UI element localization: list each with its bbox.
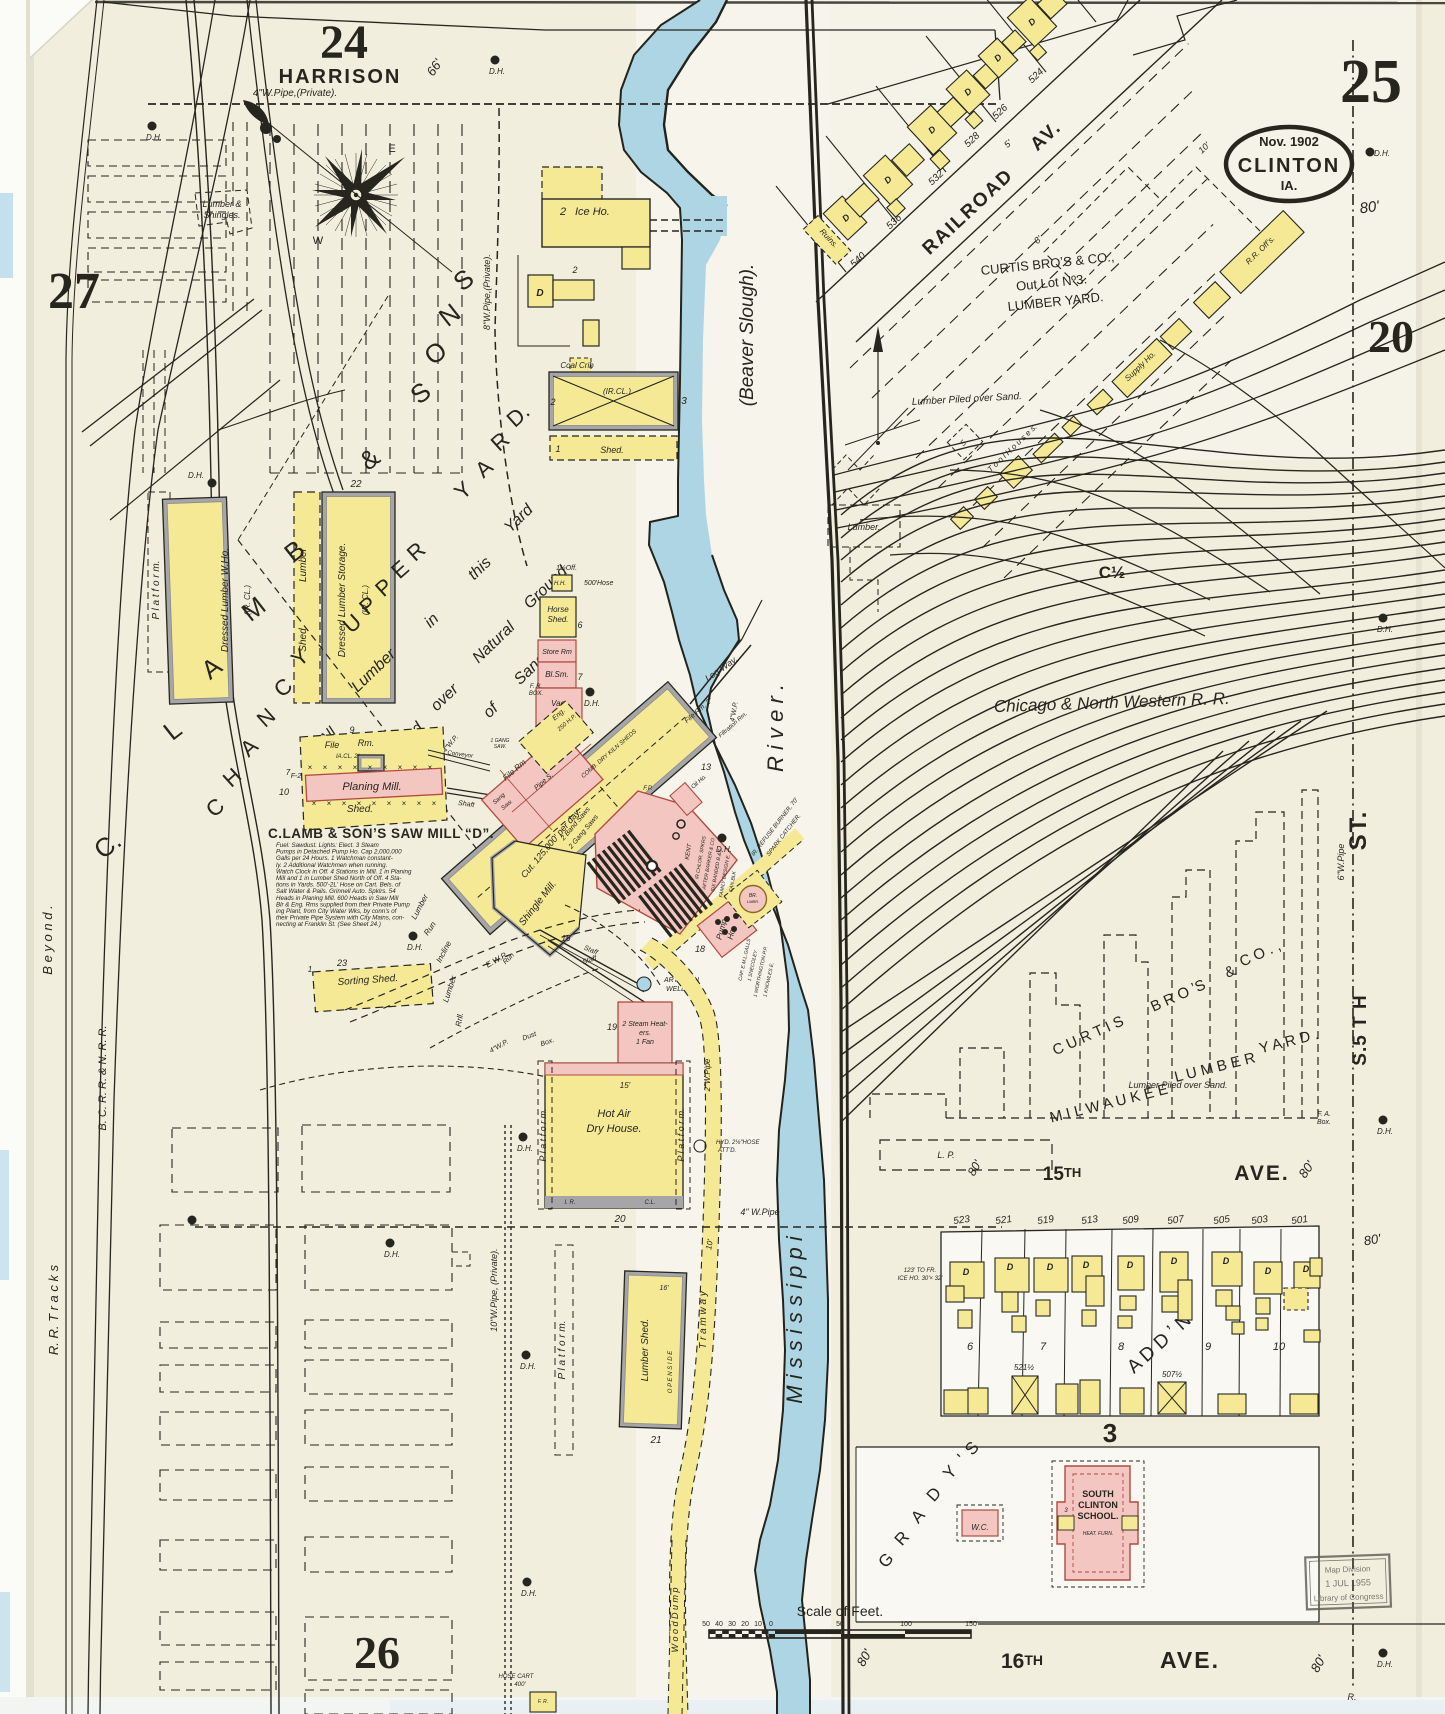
svg-text:File: File	[325, 740, 340, 750]
svg-text:Map Division: Map Division	[1325, 1564, 1371, 1575]
svg-text:D: D	[536, 288, 543, 299]
svg-text:×: ×	[372, 799, 377, 808]
svg-text:123' TO FR.: 123' TO FR.	[904, 1268, 936, 1274]
svg-text:P l a t f o r m.: P l a t f o r m.	[151, 560, 162, 619]
svg-text:13: 13	[701, 762, 711, 772]
svg-text:W.C.: W.C.	[971, 1523, 988, 1532]
svg-text:D: D	[1265, 1266, 1272, 1276]
svg-text:Box.: Box.	[1317, 1119, 1331, 1126]
svg-text:IA.CL. 2°: IA.CL. 2°	[336, 754, 361, 760]
svg-text:Dressed Lumber Storage.: Dressed Lumber Storage.	[337, 543, 348, 658]
svg-text:F. A.: F. A.	[1317, 1111, 1331, 1118]
svg-text:150: 150	[965, 1621, 977, 1628]
svg-text:×: ×	[428, 763, 433, 772]
svg-text:D: D	[1047, 1262, 1054, 1272]
svg-text:×: ×	[327, 799, 332, 808]
svg-text:ATTʼD.: ATTʼD.	[717, 1148, 736, 1154]
svg-text:Dressed Lumber W.Ho.: Dressed Lumber W.Ho.	[220, 548, 231, 652]
svg-text:F-2: F-2	[291, 773, 302, 780]
svg-text:F. R.: F. R.	[538, 1699, 548, 1705]
svg-text:3: 3	[1103, 1418, 1117, 1448]
svg-text:(IR.CL.): (IR.CL.)	[603, 387, 631, 396]
svg-text:SAW.: SAW.	[494, 744, 507, 750]
svg-text:2"W.Pipe: 2"W.Pipe	[703, 1058, 712, 1092]
svg-text:Lumber &: Lumber &	[202, 199, 241, 209]
svg-text:D.H.: D.H.	[521, 1589, 537, 1598]
svg-text:D: D	[1007, 1262, 1014, 1272]
svg-text:×: ×	[342, 799, 347, 808]
svg-text:22: 22	[349, 479, 362, 490]
svg-text:Bl.Sm.: Bl.Sm.	[545, 670, 569, 679]
svg-text:BOX.: BOX.	[529, 691, 543, 697]
svg-text:×: ×	[383, 763, 388, 772]
svg-text:W o o d D u m p: W o o d D u m p	[670, 1587, 680, 1652]
svg-text:D.H.: D.H.	[1374, 149, 1390, 158]
svg-text:D.H.: D.H.	[1377, 1127, 1393, 1136]
svg-text:Lumber Shed.: Lumber Shed.	[640, 1319, 651, 1382]
svg-text:×: ×	[387, 799, 392, 808]
svg-text:O P E N S I D E: O P E N S I D E	[668, 1350, 674, 1393]
svg-text:30: 30	[728, 1621, 736, 1628]
svg-text:D.H.: D.H.	[517, 1144, 533, 1153]
svg-text:E: E	[388, 143, 395, 155]
svg-text:IA.: IA.	[1281, 178, 1298, 193]
svg-text:R.: R.	[1348, 1692, 1357, 1702]
svg-text:D.H.: D.H.	[520, 1362, 536, 1371]
svg-text:D: D	[1083, 1260, 1090, 1270]
svg-text:16′: 16′	[659, 1285, 669, 1292]
svg-text:×: ×	[368, 763, 373, 772]
svg-text:27: 27	[48, 263, 100, 320]
svg-text:HEAT. FURN.: HEAT. FURN.	[1083, 1531, 1114, 1537]
svg-text:LMBR.: LMBR.	[747, 899, 759, 904]
svg-text:3: 3	[681, 396, 687, 407]
svg-text:1: 1	[555, 444, 560, 454]
svg-text:(Beaver Slough).: (Beaver Slough).	[737, 264, 758, 407]
svg-text:D.H.: D.H.	[384, 1250, 400, 1259]
svg-text:CLINTON: CLINTON	[1238, 155, 1341, 177]
svg-text:10: 10	[1273, 1341, 1286, 1353]
svg-text:6"W.Pipe: 6"W.Pipe	[1336, 844, 1346, 881]
svg-text:×: ×	[357, 799, 362, 808]
svg-text:SOUTH: SOUTH	[1082, 1489, 1114, 1499]
svg-text:521: 521	[995, 1214, 1013, 1227]
svg-text:×: ×	[398, 763, 403, 772]
svg-text:ers.: ers.	[639, 1030, 651, 1037]
svg-text:10: 10	[279, 787, 289, 797]
svg-text:C.LAMB & SONʼS SAW MILL “D”.: C.LAMB & SONʼS SAW MILL “D”.	[268, 826, 494, 841]
svg-text:Hot Air: Hot Air	[597, 1108, 632, 1120]
svg-text:40: 40	[715, 1621, 723, 1628]
svg-text:1 Fan: 1 Fan	[636, 1039, 654, 1046]
svg-text:10': 10'	[704, 1238, 715, 1250]
svg-text:W: W	[313, 235, 324, 247]
svg-text:×: ×	[353, 763, 358, 772]
svg-text:HARRISON: HARRISON	[279, 66, 402, 88]
svg-text:D: D	[963, 1267, 970, 1277]
svg-text:×: ×	[413, 763, 418, 772]
svg-text:1: 1	[308, 965, 312, 974]
svg-text:SCHOOL.: SCHOOL.	[1077, 1511, 1118, 1521]
svg-text:4" W.Pipe: 4" W.Pipe	[740, 1207, 779, 1217]
svg-text:I. R.: I. R.	[564, 1200, 575, 1206]
svg-text:19: 19	[607, 1022, 617, 1032]
svg-text:×: ×	[312, 799, 317, 808]
svg-text:D.H.: D.H.	[407, 943, 423, 952]
svg-text:necting at Franklin St. (See S: necting at Franklin St. (See Sheet 24.)	[276, 921, 381, 928]
svg-text:400′: 400′	[514, 1682, 526, 1688]
svg-text:×: ×	[402, 799, 407, 808]
svg-text:Horse: Horse	[547, 605, 569, 614]
svg-text:D: D	[1127, 1260, 1134, 1270]
svg-text:10: 10	[754, 1621, 762, 1628]
svg-text:ST.: ST.	[1345, 810, 1372, 851]
svg-text:7: 7	[1040, 1341, 1047, 1353]
svg-text:100: 100	[900, 1621, 912, 1628]
svg-text:R i v e r .: R i v e r .	[763, 684, 788, 772]
svg-text:CLINTON: CLINTON	[1078, 1500, 1118, 1510]
svg-text:D.H.: D.H.	[1377, 1660, 1393, 1669]
svg-text:B e y o n d .: B e y o n d .	[40, 905, 55, 974]
svg-text:D: D	[1303, 1264, 1310, 1274]
svg-text:23: 23	[336, 958, 347, 968]
svg-text:50: 50	[836, 1621, 844, 1628]
svg-text:×: ×	[432, 799, 437, 808]
svg-text:L. P.: L. P.	[937, 1150, 954, 1160]
svg-text:6: 6	[577, 620, 582, 630]
svg-text:D.H.: D.H.	[188, 471, 204, 480]
svg-text:Lumber.: Lumber.	[848, 522, 881, 532]
svg-text:M i s s i s s i p p i: M i s s i s s i p p i	[782, 1235, 807, 1404]
svg-text:2: 2	[571, 265, 577, 275]
svg-text:50: 50	[702, 1621, 710, 1628]
svg-text:Shed.: Shed.	[548, 615, 569, 624]
svg-text:1 JUL 1955: 1 JUL 1955	[1325, 1577, 1371, 1589]
svg-text:21: 21	[649, 1435, 661, 1446]
svg-text:Lumber Piled over Sand.: Lumber Piled over Sand.	[1128, 1080, 1227, 1090]
svg-text:507½: 507½	[1162, 1370, 1182, 1379]
svg-text:80': 80'	[1363, 1231, 1383, 1249]
svg-text:HYD. 2⅛″HOSE: HYD. 2⅛″HOSE	[716, 1140, 760, 1146]
svg-text:Nov. 1902: Nov. 1902	[1259, 134, 1319, 149]
svg-text:4"W.Pipe,(Private).: 4"W.Pipe,(Private).	[253, 88, 337, 99]
svg-text:D.H.: D.H.	[1377, 625, 1393, 634]
svg-text:D.H.: D.H.	[584, 699, 600, 708]
svg-text:26: 26	[354, 1627, 400, 1678]
svg-text:F. R.: F. R.	[530, 684, 542, 690]
svg-text:80': 80'	[1359, 198, 1382, 218]
svg-text:Coal Crib: Coal Crib	[560, 361, 594, 370]
svg-text:6: 6	[967, 1341, 974, 1353]
svg-text:T r a m w a y: T r a m w a y	[698, 1290, 709, 1349]
svg-text:HOSE CART: HOSE CART	[499, 1674, 535, 1680]
svg-text:0: 0	[769, 1621, 773, 1628]
svg-text:15′: 15′	[620, 1081, 631, 1090]
svg-text:AVE.: AVE.	[1160, 1647, 1220, 1673]
svg-text:2 Steam Heat-: 2 Steam Heat-	[621, 1021, 668, 1028]
svg-text:1½Off.: 1½Off.	[556, 564, 577, 572]
svg-text:ICE HO. 30'× 32': ICE HO. 30'× 32'	[898, 1276, 944, 1282]
svg-text:C.L.: C.L.	[644, 1200, 655, 1206]
svg-text:9: 9	[1205, 1341, 1211, 1353]
svg-text:B. C. R. R. & N. R. R.: B. C. R. R. & N. R. R.	[97, 1025, 109, 1130]
svg-text:Shingles.: Shingles.	[203, 210, 240, 220]
svg-text:H.H.: H.H.	[554, 581, 566, 587]
svg-text:P l a t f o r m.: P l a t f o r m.	[557, 1320, 568, 1379]
svg-text:C½: C½	[1099, 563, 1125, 582]
svg-text:Planing Mill.: Planing Mill.	[342, 781, 401, 793]
svg-text:501: 501	[1291, 1214, 1309, 1227]
svg-text:D.H.: D.H.	[716, 845, 732, 854]
svg-text:Store Rm: Store Rm	[542, 649, 572, 656]
svg-text:D.H.: D.H.	[489, 67, 505, 76]
svg-text:P l a t f o r m.: P l a t f o r m.	[538, 1108, 548, 1161]
svg-text:20: 20	[613, 1214, 626, 1225]
svg-text:25: 25	[1340, 48, 1402, 116]
svg-text:20: 20	[741, 1621, 749, 1628]
svg-text:8: 8	[1118, 1341, 1125, 1353]
svg-text:×: ×	[323, 763, 328, 772]
svg-text:9: 9	[349, 725, 354, 735]
svg-text:10"W.Pipe, (Private).: 10"W.Pipe, (Private).	[489, 1248, 499, 1331]
svg-text:×: ×	[417, 799, 422, 808]
svg-text:F.P.: F.P.	[643, 786, 652, 792]
svg-text:Dry House.: Dry House.	[586, 1123, 641, 1135]
svg-text:S.5 T H: S.5 T H	[1350, 994, 1371, 1065]
svg-text:500′Hose: 500′Hose	[584, 580, 613, 587]
svg-text:2: 2	[559, 206, 566, 218]
svg-text:×: ×	[308, 763, 313, 772]
svg-text:P l a t f o r m.: P l a t f o r m.	[676, 1108, 686, 1161]
svg-text:D: D	[1171, 1256, 1178, 1266]
svg-text:R. R. T r a c k s: R. R. T r a c k s	[46, 1264, 61, 1355]
svg-text:Scale of Feet.: Scale of Feet.	[797, 1603, 883, 1619]
svg-text:18: 18	[695, 944, 705, 954]
svg-text:Ice Ho.: Ice Ho.	[575, 206, 610, 218]
svg-text:Rm.: Rm.	[358, 738, 375, 748]
svg-text:8"W.Pipe,(Private).: 8"W.Pipe,(Private).	[482, 254, 492, 330]
svg-text:521½: 521½	[1014, 1363, 1034, 1372]
svg-text:AVE.: AVE.	[1234, 1162, 1289, 1185]
svg-text:D: D	[1223, 1256, 1230, 1266]
svg-text:2: 2	[549, 397, 555, 407]
svg-text:×: ×	[338, 763, 343, 772]
svg-text:7: 7	[286, 768, 291, 777]
svg-text:24: 24	[320, 16, 368, 69]
svg-text:Shed.: Shed.	[600, 445, 624, 455]
svg-text:D.H.: D.H.	[146, 133, 162, 142]
svg-text:20: 20	[1368, 311, 1414, 362]
